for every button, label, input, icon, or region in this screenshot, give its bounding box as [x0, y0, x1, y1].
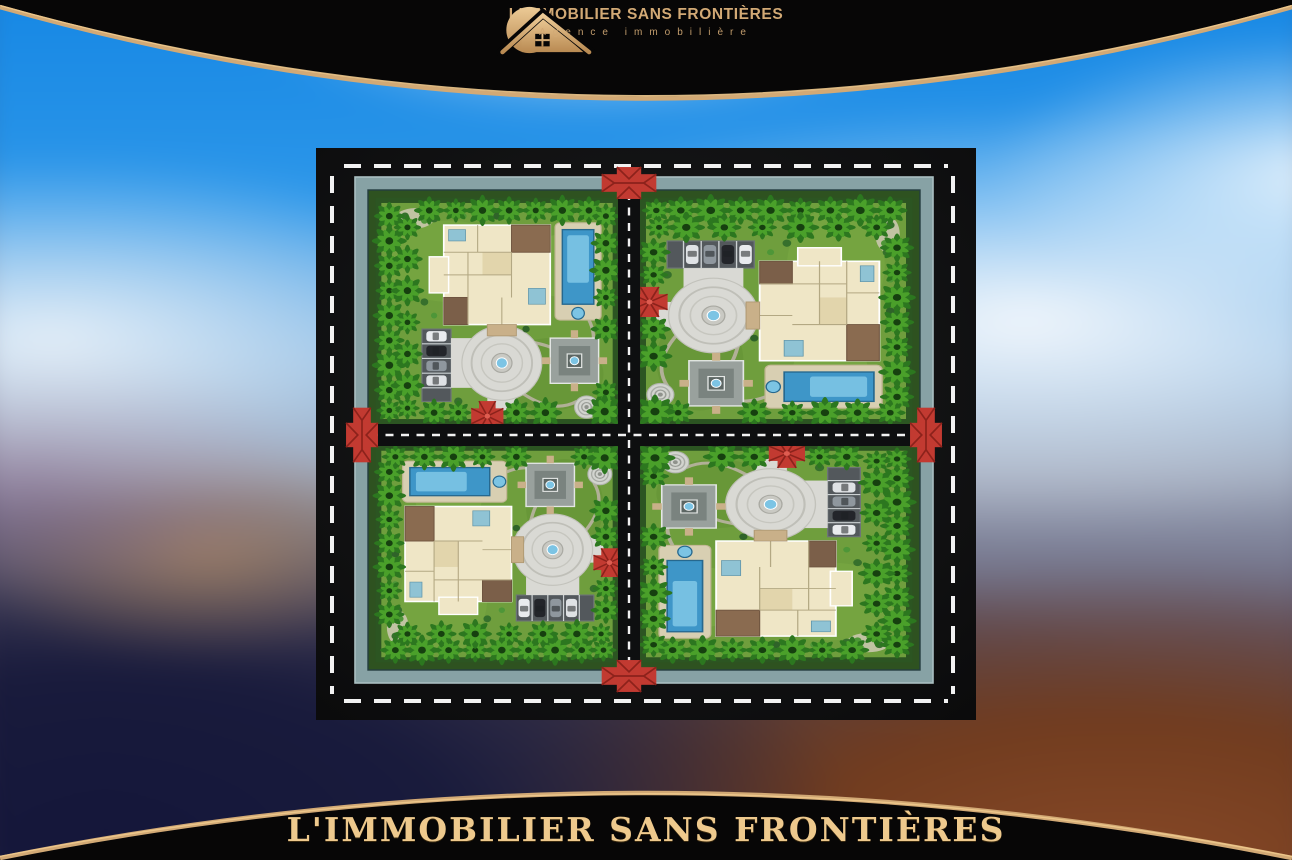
master-plan-panel: [316, 148, 976, 720]
master-plan: [316, 148, 976, 720]
villa-plot-bottom-left: [373, 442, 626, 666]
villa-plot-top-left: [372, 195, 623, 431]
poster: L'IMMOBILIER SANS FRONTIÈRES Agence immo…: [0, 0, 1292, 860]
villa-plot-top-right: [631, 194, 915, 429]
villa-plot-bottom-right: [634, 439, 916, 665]
